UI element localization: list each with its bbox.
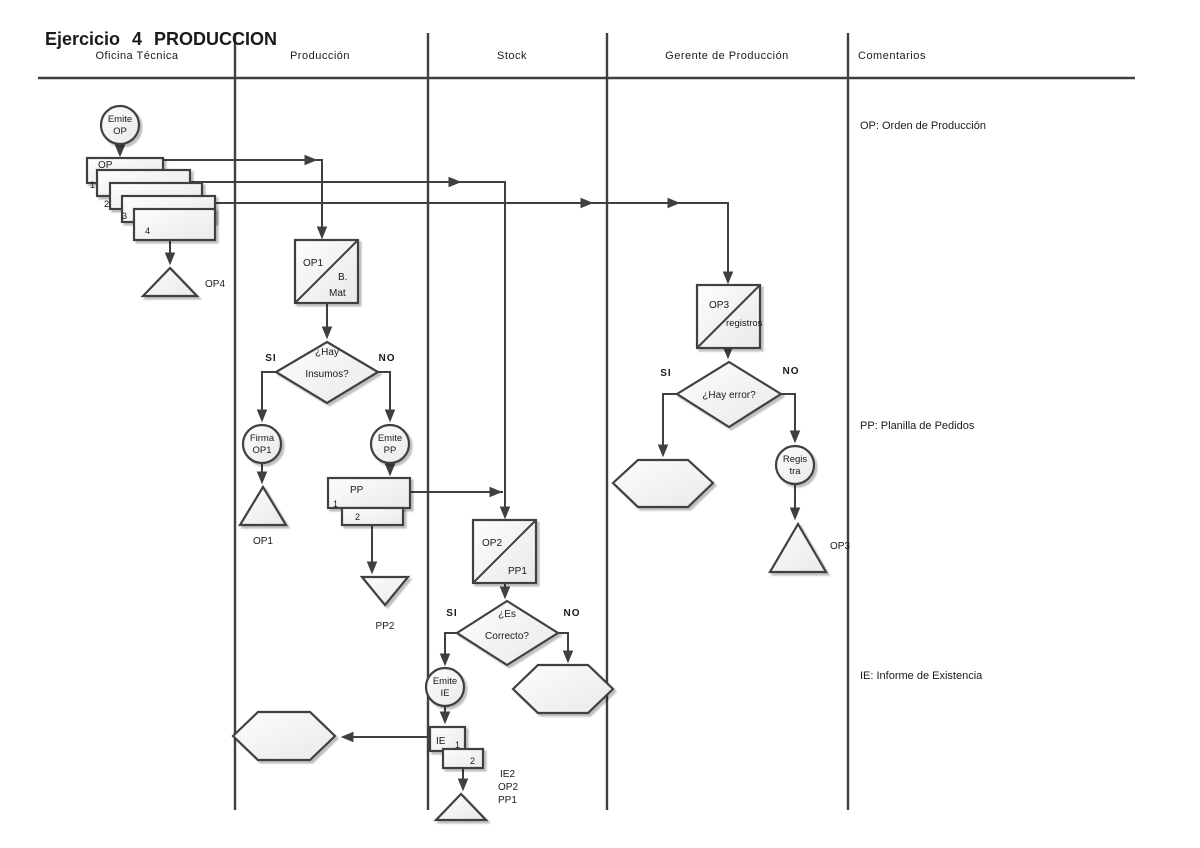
- registros-label: registros: [726, 318, 763, 329]
- node-emite-ie: Emite IE: [426, 668, 464, 706]
- emite-op-line2: OP: [113, 126, 127, 137]
- arrowhead: [318, 227, 327, 238]
- archive-ie-label1: IE2: [500, 769, 515, 780]
- archive-triangle-op4: [143, 268, 197, 296]
- firma-op1-line1: Firma: [250, 433, 275, 444]
- hexagon-produccion-end: [233, 712, 335, 760]
- decision-insumos-line1: ¿Hay: [315, 347, 339, 358]
- node-operation-op1-bmat: OP1 B. Mat: [295, 240, 358, 303]
- decision-error-si-label: SI: [660, 368, 671, 379]
- archive-triangle-op3: [770, 524, 826, 572]
- lane-header-produccion: Producción: [290, 50, 350, 62]
- document-op-num3: 3: [122, 211, 127, 221]
- firma-op1-line2: OP1: [252, 445, 271, 456]
- connector-op2-to-stock: [190, 182, 505, 517]
- emite-op-line1: Emite: [108, 114, 132, 125]
- lane-header-stock: Stock: [497, 50, 527, 62]
- decision-error-label: ¿Hay error?: [702, 390, 756, 401]
- arrowhead: [791, 431, 800, 442]
- arrowhead: [342, 733, 353, 742]
- comment-pp: PP: Planilla de Pedidos: [860, 420, 975, 432]
- arrowhead: [386, 464, 395, 475]
- archive-op1-label: OP1: [253, 536, 273, 547]
- archive-op3-label: OP3: [830, 541, 850, 552]
- op1-label: OP1: [303, 258, 323, 269]
- document-op-num2: 2: [104, 199, 109, 209]
- op2-label: OP2: [482, 538, 502, 549]
- comments-column: OP: Orden de Producción PP: Planilla de …: [860, 120, 986, 682]
- arrowhead: [441, 712, 450, 723]
- node-hexagon-stock: [513, 665, 613, 713]
- node-operation-op2-pp1: OP2 PP1: [473, 520, 536, 583]
- document-pp-copy2: [342, 508, 403, 525]
- pp1-label: PP1: [508, 566, 527, 577]
- arrowhead: [368, 562, 377, 573]
- arrowhead: [490, 488, 501, 497]
- decision-correcto-si-label: SI: [446, 608, 457, 619]
- arrowhead: [449, 178, 460, 187]
- arrowhead: [659, 445, 668, 456]
- document-ie-num1: 1: [455, 740, 460, 750]
- document-op-num4: 4: [145, 226, 150, 236]
- hexagon-stock-end: [513, 665, 613, 713]
- decision-correcto-line1: ¿Es: [498, 609, 516, 620]
- document-pp-label: PP: [350, 485, 364, 496]
- connector-op3-to-gerente: [202, 203, 728, 282]
- node-archive-op3: OP3: [770, 524, 850, 572]
- lane-header-comentarios: Comentarios: [858, 50, 926, 62]
- flowchart-svg: Ejercicio 4 PRODUCCION Oficina Técnica P…: [0, 0, 1200, 848]
- bmat-label1: B.: [338, 272, 347, 283]
- arrowhead: [791, 508, 800, 519]
- circle-firma-op1: [243, 425, 281, 463]
- arrowhead: [258, 410, 267, 421]
- archive-pp2-label: PP2: [376, 621, 395, 632]
- node-emite-pp: Emite PP: [371, 425, 409, 463]
- circle-emite-ie: [426, 668, 464, 706]
- emite-ie-line2: IE: [441, 688, 450, 699]
- arrowhead: [581, 199, 592, 208]
- arrowhead: [501, 587, 510, 598]
- emite-ie-line1: Emite: [433, 676, 457, 687]
- node-document-pp-stack: PP 1 2: [328, 478, 410, 525]
- document-op-num1: 1: [90, 180, 95, 190]
- arrowhead: [501, 507, 510, 518]
- registra-line1: Regis: [783, 454, 808, 465]
- arrowhead: [564, 651, 573, 662]
- document-ie-num2: 2: [470, 756, 475, 766]
- archive-ie-label2: OP2: [498, 782, 518, 793]
- arrowhead: [459, 779, 468, 790]
- archive-triangle-op1: [240, 487, 286, 525]
- archive-triangle-ie: [436, 794, 486, 820]
- lane-header-oficina-tecnica: Oficina Técnica: [95, 50, 178, 62]
- arrowhead: [724, 272, 733, 283]
- decision-insumos-si-label: SI: [265, 353, 276, 364]
- arrowhead: [668, 199, 679, 208]
- node-firma-op1: Firma OP1: [243, 425, 281, 463]
- arrowhead: [441, 654, 450, 665]
- node-registra: Regis tra: [776, 446, 814, 484]
- arrowhead: [116, 145, 125, 156]
- circle-emite-pp: [371, 425, 409, 463]
- node-decision-insumos: ¿Hay Insumos? SI NO: [265, 342, 395, 403]
- arrowhead: [386, 410, 395, 421]
- document-pp-num1: 1: [333, 499, 338, 509]
- lane-header-gerente: Gerente de Producción: [665, 50, 789, 62]
- hexagon-gerente-end: [613, 460, 713, 507]
- node-archive-op1: OP1: [240, 487, 286, 547]
- arrowhead: [166, 253, 175, 264]
- node-archive-op4: OP4: [143, 268, 225, 296]
- node-hexagon-produccion: [233, 712, 335, 760]
- op3-label: OP3: [709, 300, 729, 311]
- document-pp-num2: 2: [355, 512, 360, 522]
- bmat-label2: Mat: [329, 288, 346, 299]
- decision-error-no-label: NO: [783, 366, 800, 377]
- start-circle-emite-op: [101, 106, 139, 144]
- decision-insumos-no-label: NO: [379, 353, 396, 364]
- flowchart-canvas: Ejercicio 4 PRODUCCION Oficina Técnica P…: [0, 0, 1200, 848]
- emite-pp-line1: Emite: [378, 433, 402, 444]
- arrowhead: [305, 156, 316, 165]
- archive-op4-label: OP4: [205, 279, 225, 290]
- arrowhead: [323, 327, 332, 338]
- node-archive-ie: IE2 OP2 PP1: [436, 769, 518, 820]
- document-pp-sheet: [328, 478, 410, 508]
- document-ie-label: IE: [436, 736, 446, 747]
- node-hexagon-gerente: [613, 460, 713, 507]
- decision-insumos-line2: Insumos?: [305, 369, 349, 380]
- node-decision-error: ¿Hay error? SI NO: [660, 362, 799, 427]
- archive-ie-label3: PP1: [498, 795, 517, 806]
- arrowhead: [258, 472, 267, 483]
- decision-correcto-line2: Correcto?: [485, 631, 529, 642]
- node-archive-pp2: PP2: [362, 577, 408, 632]
- node-document-op-stack: OP 1 2 3 4: [87, 158, 215, 240]
- node-document-ie-stack: IE 1 2: [430, 727, 483, 768]
- circle-registra: [776, 446, 814, 484]
- registra-line2: tra: [789, 466, 801, 477]
- archive-triangle-pp2: [362, 577, 408, 605]
- node-emite-op: Emite OP: [101, 106, 139, 144]
- comment-ie: IE: Informe de Existencia: [860, 670, 983, 682]
- document-op-label: OP: [98, 160, 113, 171]
- comment-op: OP: Orden de Producción: [860, 120, 986, 132]
- page-title: Ejercicio 4 PRODUCCION: [45, 29, 277, 49]
- document-ie-copy2: [443, 749, 483, 768]
- emite-pp-line2: PP: [384, 445, 397, 456]
- node-operation-op3-registros: OP3 registros: [697, 285, 763, 348]
- decision-correcto-no-label: NO: [564, 608, 581, 619]
